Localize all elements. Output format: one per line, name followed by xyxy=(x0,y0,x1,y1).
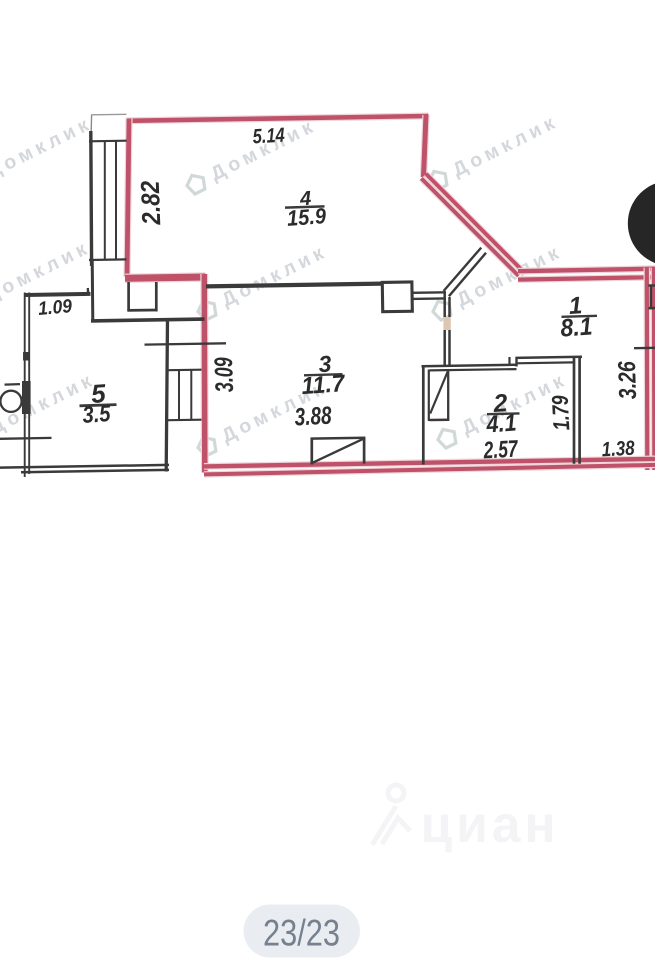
svg-text:1.38: 1.38 xyxy=(601,437,636,462)
svg-text:1.79: 1.79 xyxy=(547,395,575,431)
svg-text:23/23: 23/23 xyxy=(263,913,340,954)
svg-text:Домклик: Домклик xyxy=(449,110,562,181)
svg-text:15.9: 15.9 xyxy=(286,203,327,231)
svg-text:5.14: 5.14 xyxy=(252,124,286,149)
svg-text:циан: циан xyxy=(421,796,560,854)
svg-text:3.09: 3.09 xyxy=(210,356,239,393)
svg-text:2.82: 2.82 xyxy=(135,180,167,226)
svg-text:8.1: 8.1 xyxy=(560,312,594,342)
svg-text:3.88: 3.88 xyxy=(294,402,332,432)
svg-text:Домклик: Домклик xyxy=(218,240,331,311)
svg-text:11.7: 11.7 xyxy=(301,370,347,400)
svg-text:1.09: 1.09 xyxy=(37,296,73,320)
svg-text:Домклик: Домклик xyxy=(0,112,96,183)
svg-text:Домклик: Домклик xyxy=(0,236,94,307)
svg-text:3.26: 3.26 xyxy=(614,361,642,400)
svg-text:3.5: 3.5 xyxy=(82,400,113,428)
svg-text:2.57: 2.57 xyxy=(482,436,519,465)
svg-text:4.1: 4.1 xyxy=(485,410,518,439)
